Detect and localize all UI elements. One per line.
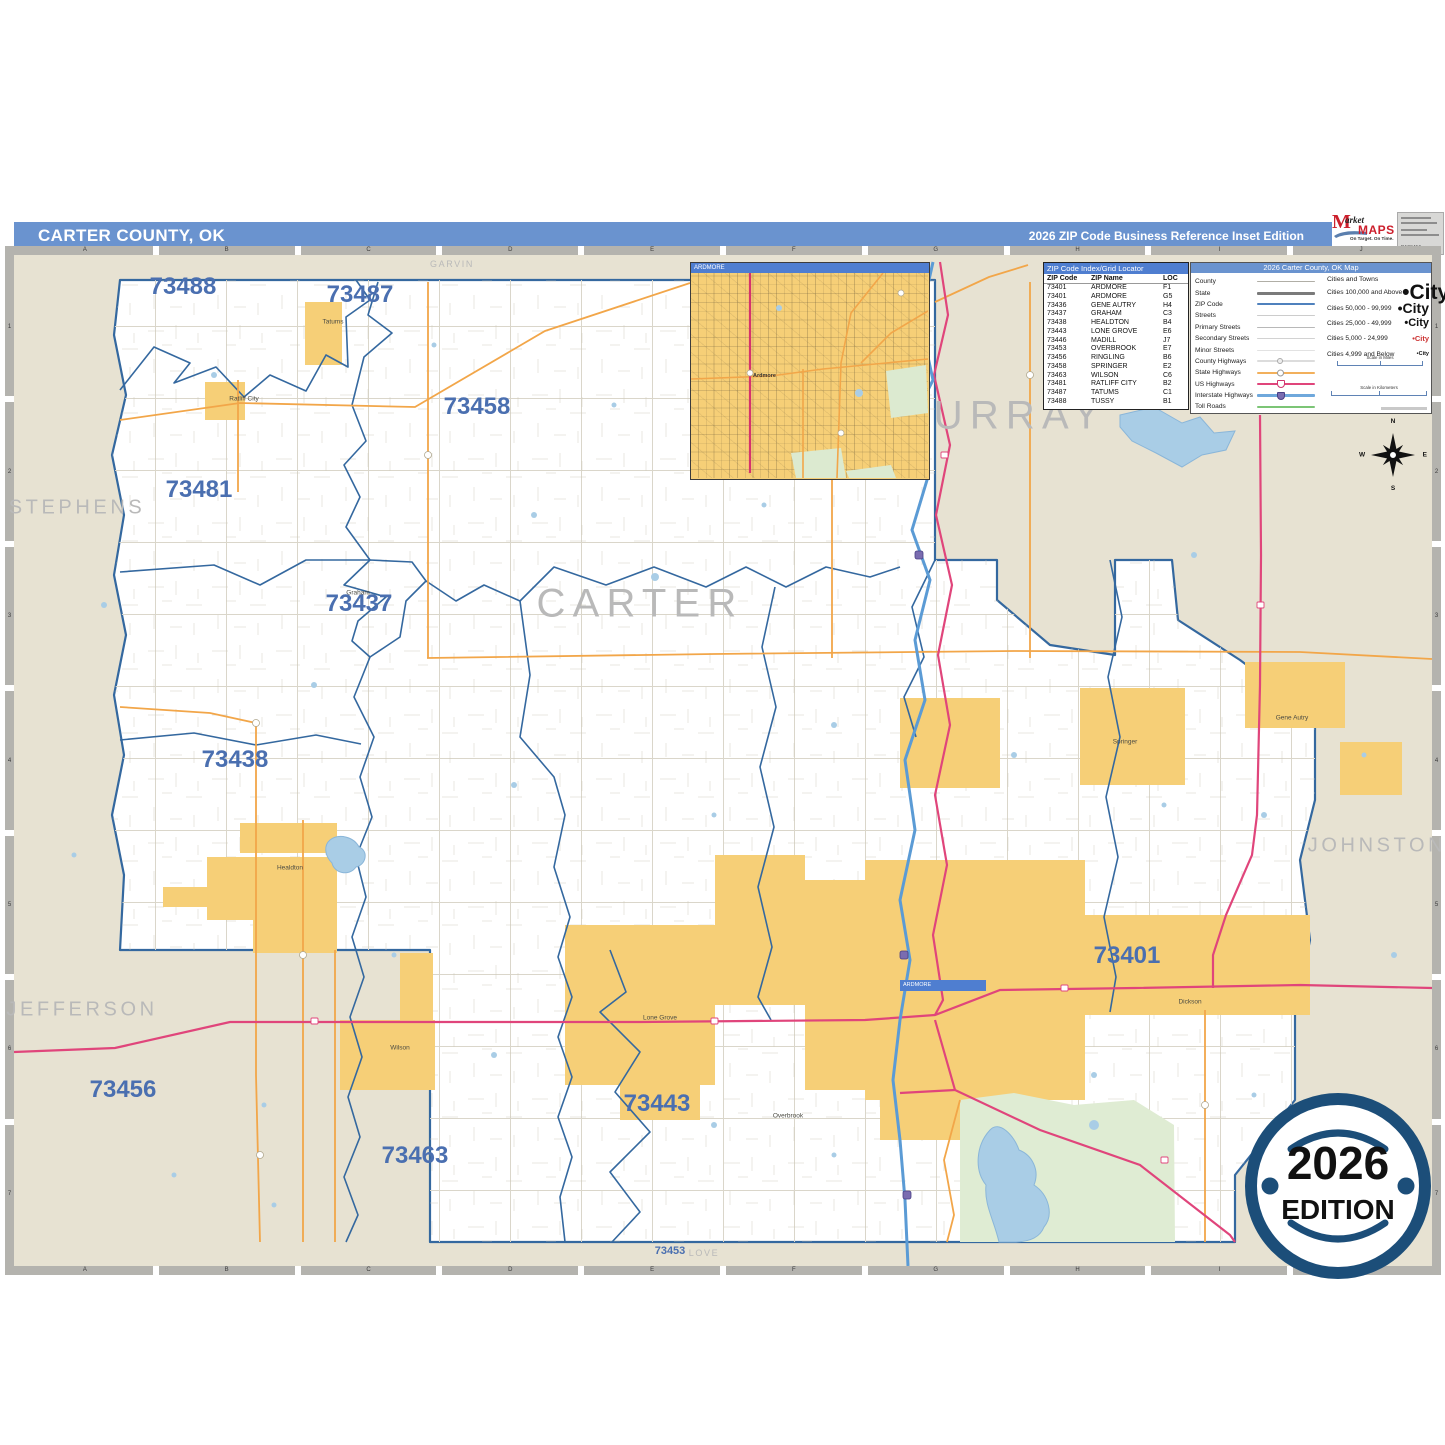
compass-e: E bbox=[1423, 452, 1427, 459]
legend-item: Toll Roads bbox=[1195, 401, 1321, 412]
grid-notch bbox=[1145, 1266, 1151, 1275]
legend-city-class-label: Cities 5,000 - 24,999 bbox=[1327, 335, 1388, 342]
legend-item-label: County bbox=[1195, 278, 1257, 285]
grid-notch bbox=[295, 246, 301, 255]
grid-col-label: A bbox=[83, 1266, 87, 1275]
zip-index-col-code: ZIP Code bbox=[1044, 274, 1088, 284]
legend-item-label: Primary Streets bbox=[1195, 324, 1257, 331]
ardmore-inset-city-label: Ardmore bbox=[753, 373, 776, 379]
compass-rose: N S W E bbox=[1359, 418, 1427, 492]
legend-city-sample: •City bbox=[1398, 301, 1429, 315]
shield-icon bbox=[1277, 380, 1285, 388]
badge-year: 2026 bbox=[1287, 1137, 1389, 1189]
grid-col-label: B bbox=[225, 246, 229, 255]
legend-item: US Highways bbox=[1195, 379, 1321, 390]
legend-city-sample: •City bbox=[1404, 318, 1429, 329]
grid-col-label: G bbox=[933, 246, 938, 255]
logo-tagline: On Target. On Time. bbox=[1350, 236, 1393, 241]
legend-panel: 2026 Carter County, OK Map CountyStateZI… bbox=[1190, 262, 1432, 414]
grid-notch bbox=[5, 396, 14, 402]
legend-item: Primary Streets bbox=[1195, 322, 1321, 333]
inset-coverage-marker: ARDMORE bbox=[900, 980, 986, 991]
legend-line-sample bbox=[1257, 303, 1315, 305]
page: CARTER COUNTY, OK 2026 ZIP Code Business… bbox=[0, 0, 1445, 1445]
zip-index-row: 73401ARDMOREG5 bbox=[1044, 293, 1188, 302]
zip-index-row: 73453OVERBROOKE7 bbox=[1044, 345, 1188, 354]
compass-w: W bbox=[1359, 452, 1365, 459]
legend-lines: CountyStateZIP CodeStreetsPrimary Street… bbox=[1195, 276, 1321, 413]
legend-copyright bbox=[1381, 407, 1427, 410]
legend-item: State bbox=[1195, 287, 1321, 298]
zip-index-table: ZIP Code ZIP Name LOC 73401ARDMOREF17340… bbox=[1044, 274, 1188, 407]
legend-city-class: Cities 5,000 - 24,999•City bbox=[1327, 331, 1429, 346]
zip-index-row: 73481RATLIFF CITYB2 bbox=[1044, 380, 1188, 389]
grid-col-label: G bbox=[933, 1266, 938, 1275]
legend-title: 2026 Carter County, OK Map bbox=[1191, 263, 1431, 273]
compass-n: N bbox=[1391, 418, 1396, 425]
grid-notch bbox=[720, 246, 726, 255]
ardmore-inset-title: ARDMORE bbox=[691, 263, 929, 273]
grid-notch bbox=[578, 246, 584, 255]
scale-miles: Scale in Miles bbox=[1337, 355, 1423, 366]
ardmore-inset-roads bbox=[691, 273, 928, 478]
legend-item: State Highways bbox=[1195, 367, 1321, 378]
grid-notch bbox=[5, 1119, 14, 1125]
grid-col-label: I bbox=[1218, 1266, 1220, 1275]
circle-icon bbox=[1277, 369, 1284, 376]
grid-row-label: 6 bbox=[1432, 1046, 1441, 1052]
grid-notch bbox=[1287, 246, 1293, 255]
grid-notch bbox=[436, 246, 442, 255]
zip-index-row: 73446MADILLJ7 bbox=[1044, 337, 1188, 346]
zip-index-row: 73463WILSONC6 bbox=[1044, 372, 1188, 381]
legend-line-sample bbox=[1257, 315, 1315, 316]
grid-col-label: F bbox=[792, 1266, 796, 1275]
grid-row-label: 3 bbox=[1432, 613, 1441, 619]
grid-notch bbox=[5, 685, 14, 691]
grid-col-label: C bbox=[366, 246, 370, 255]
zip-index-title: ZIP Code Index/Grid Locator bbox=[1044, 263, 1188, 274]
grid-col-label: J bbox=[1360, 246, 1363, 255]
grid-row-label: 7 bbox=[1432, 1191, 1441, 1197]
grid-notch bbox=[295, 1266, 301, 1275]
legend-city-class-label: Cities 25,000 - 49,999 bbox=[1327, 320, 1392, 327]
zip-index-col-loc: LOC bbox=[1160, 274, 1188, 284]
edition-badge: 2026 EDITION bbox=[1243, 1091, 1433, 1281]
grid-notch bbox=[1004, 246, 1010, 255]
grid-notch bbox=[1432, 685, 1441, 691]
legend-line-sample bbox=[1257, 350, 1315, 351]
grid-notch bbox=[5, 830, 14, 836]
zip-index-row: 73401ARDMOREF1 bbox=[1044, 284, 1188, 293]
grid-notch bbox=[1432, 974, 1441, 980]
ardmore-inset-map: ARDMORE bbox=[690, 262, 930, 480]
logo-maps: MAPS bbox=[1358, 223, 1395, 237]
zip-index-row: 73438HEALDTONB4 bbox=[1044, 319, 1188, 328]
grid-col-label: H bbox=[1075, 1266, 1079, 1275]
legend-item-label: State Highways bbox=[1195, 369, 1257, 376]
zip-index-body: 73401ARDMOREF173401ARDMOREG573436GENE AU… bbox=[1044, 284, 1188, 407]
grid-col-label: A bbox=[83, 246, 87, 255]
legend-city-class-label: Cities 50,000 - 99,999 bbox=[1327, 305, 1392, 312]
map-frame: ARDMORE STEPHENSMURRAYCARTERJOHNSTONJEFF… bbox=[5, 246, 1441, 1275]
legend-city-class: Cities 100,000 and Above•City bbox=[1327, 285, 1429, 300]
grid-notch bbox=[5, 974, 14, 980]
zip-index-row: 73436GENE AUTRYH4 bbox=[1044, 302, 1188, 311]
grid-notch bbox=[153, 246, 159, 255]
compass-star-icon bbox=[1371, 433, 1415, 477]
grid-notch bbox=[862, 1266, 868, 1275]
legend-city-class: Cities 50,000 - 99,999•City bbox=[1327, 300, 1429, 315]
grid-notch bbox=[720, 1266, 726, 1275]
zip-index-row: 73437GRAHAMC3 bbox=[1044, 310, 1188, 319]
grid-col-label: H bbox=[1075, 246, 1079, 255]
legend-item-label: County Highways bbox=[1195, 358, 1257, 365]
legend-line-sample bbox=[1257, 394, 1315, 397]
legend-item-label: Secondary Streets bbox=[1195, 335, 1257, 342]
compass-s: S bbox=[1391, 485, 1395, 492]
legend-line-sample bbox=[1257, 383, 1315, 386]
grid-row-label: 2 bbox=[5, 469, 14, 475]
grid-notch bbox=[153, 1266, 159, 1275]
grid-notch bbox=[1004, 1266, 1010, 1275]
grid-notch bbox=[1432, 541, 1441, 547]
grid-notch bbox=[1432, 396, 1441, 402]
zip-index-row: 73487TATUMSC1 bbox=[1044, 389, 1188, 398]
scale-km: Scale in Kilometers bbox=[1331, 385, 1427, 396]
grid-notch bbox=[5, 541, 14, 547]
grid-row-label: 5 bbox=[1432, 902, 1441, 908]
grid-row-label: 3 bbox=[5, 613, 14, 619]
legend-line-sample bbox=[1257, 327, 1315, 329]
legend-line-sample bbox=[1257, 406, 1315, 408]
grid-row-label: 1 bbox=[5, 324, 14, 330]
circle-gray-icon bbox=[1277, 358, 1283, 364]
grid-notch bbox=[862, 246, 868, 255]
zip-index-row: 73488TUSSYB1 bbox=[1044, 398, 1188, 407]
ishield-icon bbox=[1277, 392, 1285, 400]
legend-item-label: Interstate Highways bbox=[1195, 392, 1257, 399]
zip-index-col-name: ZIP Name bbox=[1088, 274, 1160, 284]
page-title: CARTER COUNTY, OK bbox=[38, 226, 225, 246]
grid-col-label: E bbox=[650, 1266, 654, 1275]
edition-subtitle: 2026 ZIP Code Business Reference Inset E… bbox=[1029, 229, 1304, 243]
legend-line-sample bbox=[1257, 338, 1315, 339]
legend-item-label: State bbox=[1195, 290, 1257, 297]
ardmore-inset-body: Ardmore bbox=[691, 273, 928, 478]
legend-item-label: Toll Roads bbox=[1195, 403, 1257, 410]
legend-item-label: Streets bbox=[1195, 312, 1257, 319]
badge-word: EDITION bbox=[1281, 1194, 1395, 1225]
grid-row-label: 4 bbox=[5, 758, 14, 764]
legend-line-sample bbox=[1257, 372, 1315, 375]
legend-line-sample bbox=[1257, 360, 1315, 362]
grid-col-label: D bbox=[508, 246, 512, 255]
legend-item: Minor Streets bbox=[1195, 344, 1321, 355]
legend-item: County Highways bbox=[1195, 356, 1321, 367]
grid-col-label: C bbox=[366, 1266, 370, 1275]
legend-item: Interstate Highways bbox=[1195, 390, 1321, 401]
zip-index-row: 73458SPRINGERE2 bbox=[1044, 363, 1188, 372]
legend-item-label: ZIP Code bbox=[1195, 301, 1257, 308]
legend-item: Streets bbox=[1195, 310, 1321, 321]
legend-item: County bbox=[1195, 276, 1321, 287]
grid-row-label: 5 bbox=[5, 902, 14, 908]
grid-row-label: 6 bbox=[5, 1046, 14, 1052]
legend-item-label: US Highways bbox=[1195, 381, 1257, 388]
grid-notch bbox=[1432, 830, 1441, 836]
grid-row-label: 2 bbox=[1432, 469, 1441, 475]
grid-col-label: D bbox=[508, 1266, 512, 1275]
zip-index-row: 73443LONE GROVEE6 bbox=[1044, 328, 1188, 337]
legend-city-sample: •City bbox=[1412, 335, 1429, 343]
grid-notch bbox=[436, 1266, 442, 1275]
legend-line-sample bbox=[1257, 281, 1315, 283]
legend-line-sample bbox=[1257, 292, 1315, 295]
legend-item: ZIP Code bbox=[1195, 299, 1321, 310]
grid-notch bbox=[578, 1266, 584, 1275]
legend-item: Secondary Streets bbox=[1195, 333, 1321, 344]
grid-notch bbox=[1145, 246, 1151, 255]
grid-col-label: I bbox=[1218, 246, 1220, 255]
grid-row-label: 1 bbox=[1432, 324, 1441, 330]
grid-col-label: E bbox=[650, 246, 654, 255]
zip-index-panel: ZIP Code Index/Grid Locator ZIP Code ZIP… bbox=[1043, 262, 1189, 410]
legend-right: Cities and Towns Cities 100,000 and Abov… bbox=[1327, 276, 1429, 362]
grid-col-label: F bbox=[792, 246, 796, 255]
legend-city-class: Cities 25,000 - 49,999•City bbox=[1327, 316, 1429, 331]
legend-city-class-label: Cities 100,000 and Above bbox=[1327, 289, 1402, 296]
grid-row-label: 4 bbox=[1432, 758, 1441, 764]
grid-col-label: B bbox=[225, 1266, 229, 1275]
edition-badge-graphic: 2026 EDITION bbox=[1243, 1091, 1433, 1281]
grid-row-label: 7 bbox=[5, 1191, 14, 1197]
legend-cities: Cities 100,000 and Above•CityCities 50,0… bbox=[1327, 285, 1429, 362]
grid-notch bbox=[1432, 1119, 1441, 1125]
legend-item-label: Minor Streets bbox=[1195, 347, 1257, 354]
zip-index-row: 73456RINGLINGB6 bbox=[1044, 354, 1188, 363]
